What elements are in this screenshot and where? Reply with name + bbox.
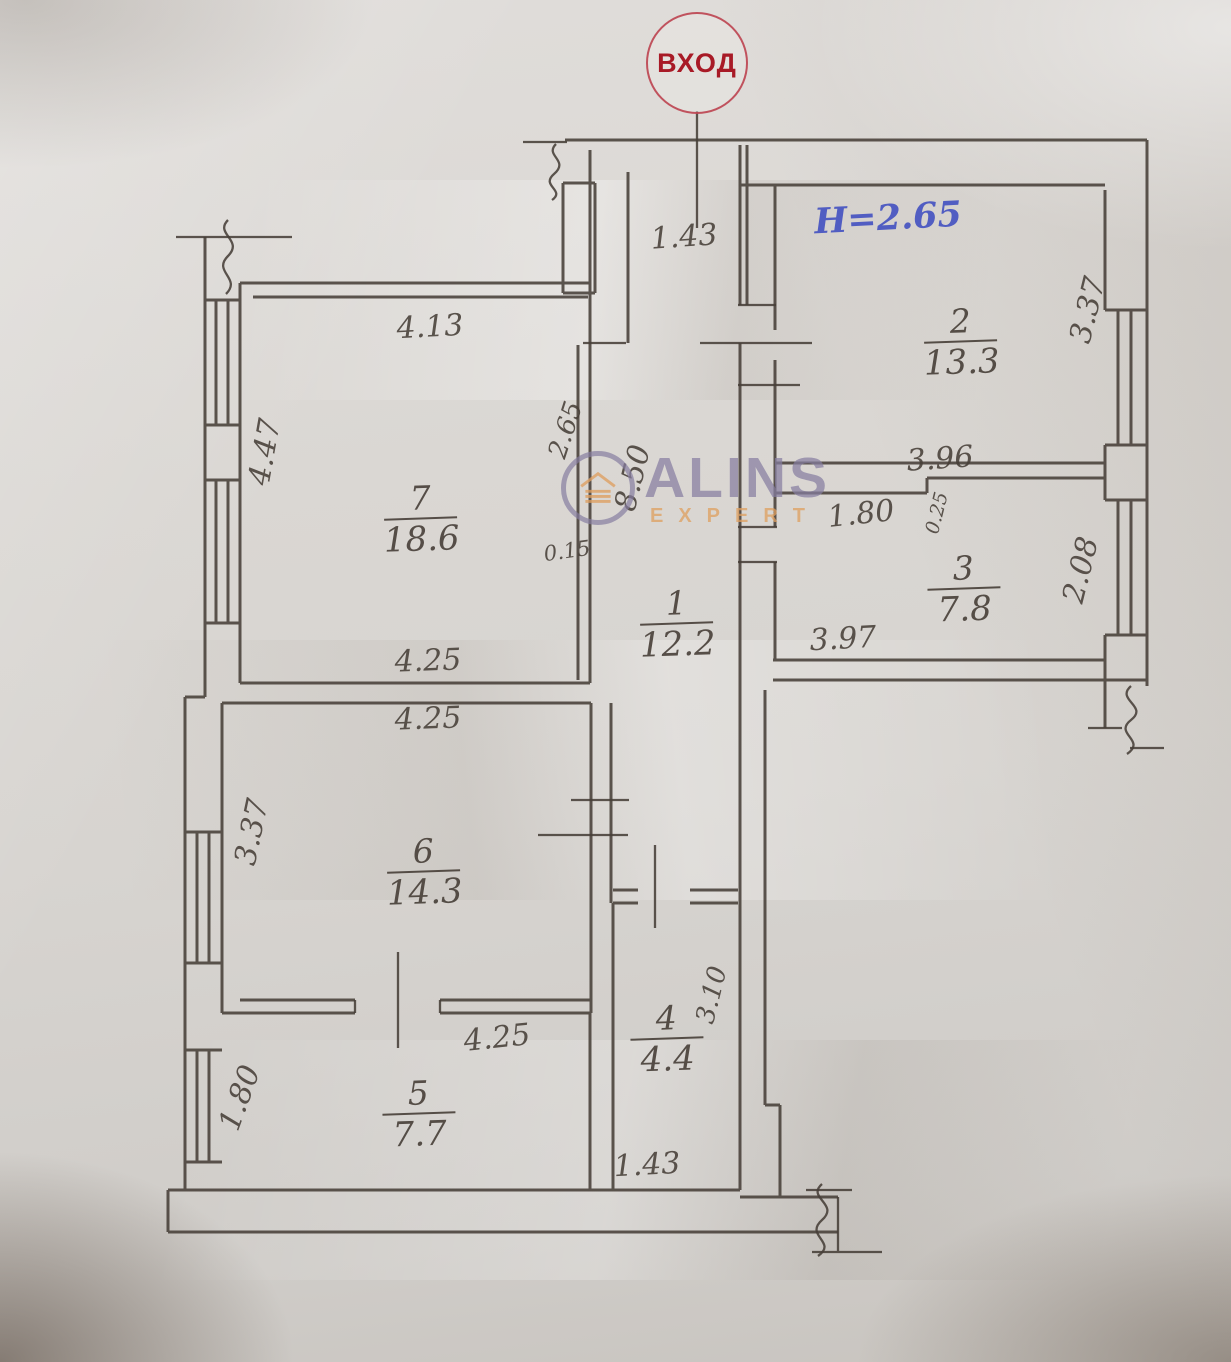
room-label: 44.4 bbox=[629, 1000, 705, 1080]
room-label: 718.6 bbox=[382, 480, 460, 560]
dimension-label: 2.08 bbox=[1056, 533, 1106, 606]
room-area: 4.4 bbox=[640, 1038, 695, 1079]
dimension-label: 3.97 bbox=[809, 620, 878, 658]
entrance-badge: ВХОД bbox=[646, 12, 748, 114]
dimension-label: 4.47 bbox=[242, 416, 288, 488]
dimension-label: 4.25 bbox=[394, 642, 462, 679]
room-area: 13.3 bbox=[923, 341, 1000, 383]
room-area: 7.7 bbox=[392, 1113, 447, 1154]
dimension-label: 3.37 bbox=[228, 796, 276, 869]
dimension-label: 3.37 bbox=[1063, 273, 1113, 346]
room-label: 112.2 bbox=[638, 585, 716, 665]
room-area: 14.3 bbox=[386, 871, 463, 913]
watermark-circle bbox=[561, 451, 635, 525]
dimension-label: 4.13 bbox=[396, 308, 465, 346]
dimension-label: 1.80 bbox=[826, 493, 896, 535]
floorplan-photo: { "plan": { "entrance": { "label": "ВХОД… bbox=[0, 0, 1231, 1362]
room-label: 37.8 bbox=[926, 550, 1002, 630]
entrance-label: ВХОД bbox=[657, 48, 737, 79]
room-number: 2 bbox=[923, 303, 997, 343]
room-area: 7.8 bbox=[937, 588, 992, 629]
room-number: 1 bbox=[639, 585, 713, 625]
dimension-label: 1.80 bbox=[212, 1061, 268, 1136]
dimension-label: 1.43 bbox=[649, 217, 718, 257]
room-area: 18.6 bbox=[383, 518, 460, 560]
watermark-title: ALINS bbox=[644, 450, 830, 507]
dimension-label: 4.25 bbox=[462, 1017, 532, 1059]
room-label: 614.3 bbox=[385, 833, 463, 913]
room-number: 3 bbox=[926, 550, 1000, 590]
dimension-label: 1.43 bbox=[613, 1146, 682, 1184]
dimension-label: 2.65 bbox=[543, 398, 589, 462]
room-number: 5 bbox=[381, 1075, 455, 1115]
room-label: 213.3 bbox=[922, 303, 1000, 383]
labels-layer: 1.434.134.472.658.500.154.254.253.374.25… bbox=[0, 0, 1231, 1362]
room-label: 57.7 bbox=[381, 1075, 457, 1155]
room-number: 6 bbox=[386, 833, 460, 873]
dimension-label: 4.25 bbox=[394, 700, 462, 737]
room-number: 4 bbox=[629, 1000, 703, 1040]
house-icon bbox=[577, 469, 619, 507]
dimension-label: 0.15 bbox=[542, 536, 592, 566]
room-area: 12.2 bbox=[639, 623, 716, 665]
dimension-label: 3.96 bbox=[905, 439, 974, 479]
dimension-label: 0.25 bbox=[921, 490, 953, 536]
room-number: 7 bbox=[383, 480, 457, 520]
watermark-subtitle: EXPERT bbox=[650, 505, 820, 528]
